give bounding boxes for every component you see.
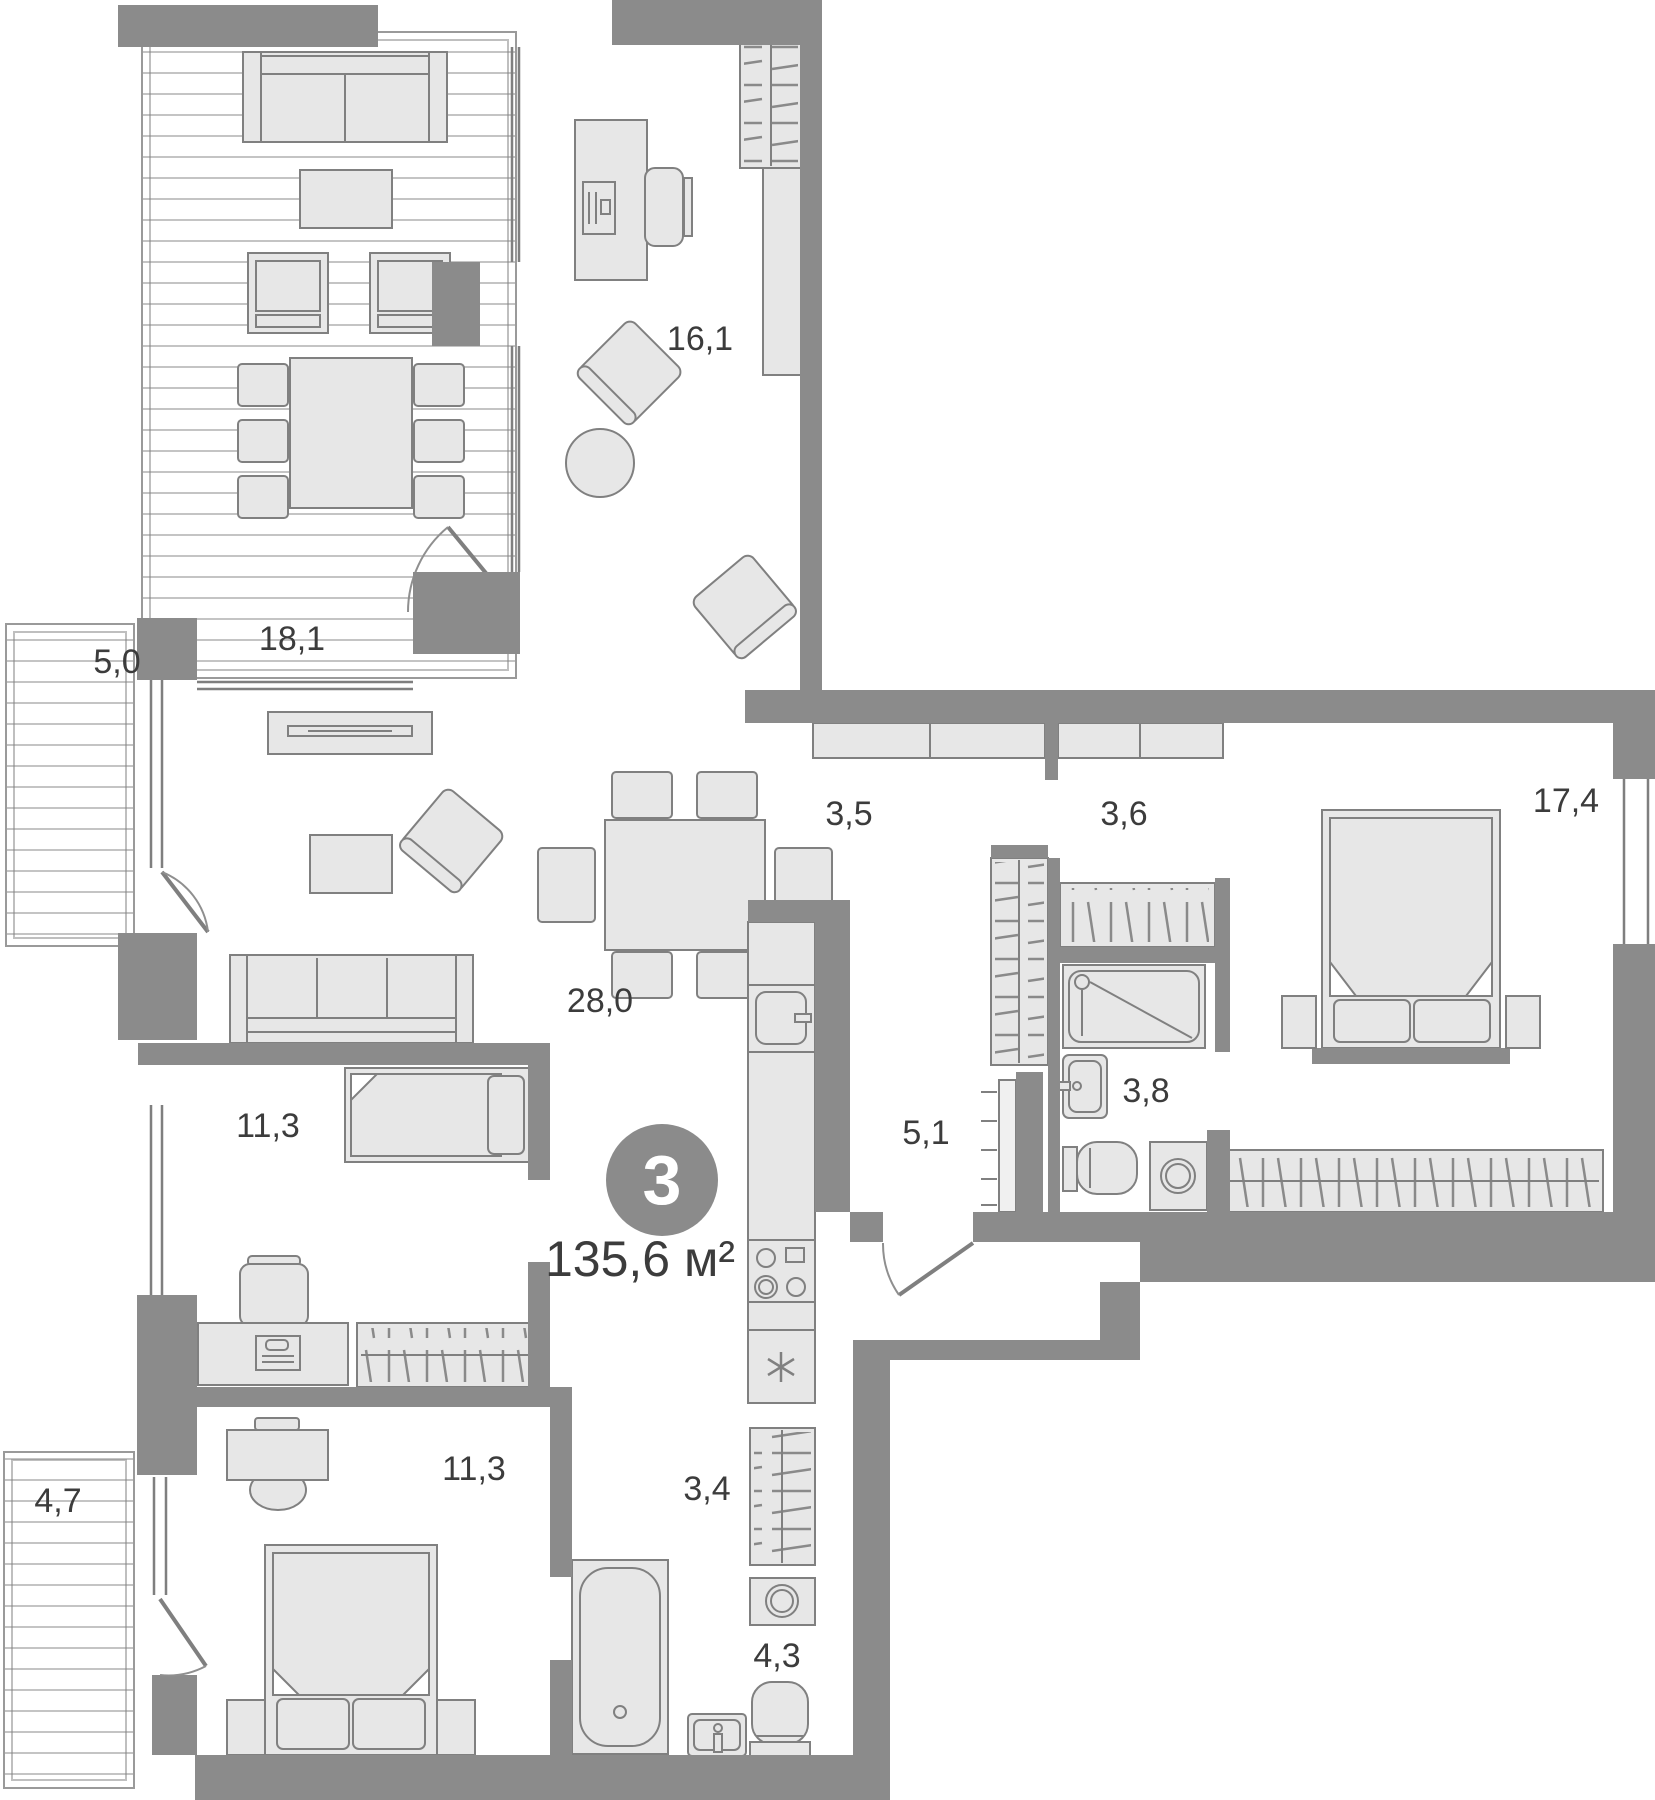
- label-bathroom-top: 3,8: [1122, 1072, 1169, 1110]
- hall-closet-wardrobe: [750, 1428, 815, 1565]
- label-hall-entry: 3,5: [825, 795, 872, 833]
- study-cabinet: [763, 168, 802, 375]
- bottom-desk: [227, 1418, 328, 1510]
- toilet: [1063, 1142, 1137, 1194]
- door-balcony-bottom: [160, 1599, 206, 1675]
- terrace-chair: [248, 253, 328, 333]
- study-wardrobe: [740, 28, 802, 168]
- terrace-dining-table: [238, 358, 464, 518]
- label-balcony-top: 5,0: [93, 643, 140, 681]
- unit-total-area: 135,6 м²: [545, 1231, 735, 1287]
- label-closet-hall: 3,4: [683, 1470, 730, 1508]
- label-hall-closet: 3,6: [1100, 795, 1147, 833]
- unit-number: 3: [643, 1141, 682, 1219]
- living-armchair: [397, 786, 505, 895]
- tv-console: [268, 712, 432, 754]
- living-coffee-table: [310, 835, 392, 893]
- middle-bed: [345, 1068, 530, 1162]
- hall-closets: [813, 723, 1223, 758]
- living-sofa: [230, 955, 473, 1043]
- study-armchair: [690, 552, 798, 661]
- washing-machine-bottom: [750, 1578, 815, 1625]
- sink: [1056, 1055, 1107, 1118]
- door-corridor: [883, 1243, 973, 1295]
- label-terrace: 18,1: [259, 620, 325, 658]
- main-bed: [1282, 810, 1540, 1064]
- shower: [1063, 965, 1205, 1048]
- hall-wardrobe: [991, 858, 1048, 1065]
- label-room-middle: 11,3: [236, 1107, 300, 1145]
- toilet-bottom: [750, 1682, 810, 1756]
- door-balcony-top: [162, 872, 208, 932]
- unit-badge: 3 135,6 м²: [545, 1124, 735, 1287]
- terrace-coffee-table: [300, 170, 392, 228]
- label-bathroom-btm: 4,3: [753, 1637, 800, 1675]
- sink-bottom: [688, 1714, 746, 1756]
- bathroom-top-shelf: [1060, 883, 1215, 947]
- bathtub: [572, 1560, 668, 1754]
- middle-chair: [240, 1256, 308, 1326]
- kitchen-sink-icon: [756, 992, 811, 1044]
- study-round-table: [566, 429, 634, 497]
- floorplan-page: 18,1 16,1 5,0 3,5 3,6 17,4 28,0 11,3 5,1…: [0, 0, 1655, 1800]
- main-bedroom-wardrobe: [1218, 1150, 1603, 1212]
- study-desk: [575, 120, 692, 280]
- middle-desk: [198, 1323, 348, 1385]
- corridor-radiator: [981, 1080, 1016, 1212]
- label-living: 28,0: [567, 982, 633, 1020]
- bottom-bed: [227, 1545, 475, 1755]
- middle-wardrobe: [357, 1323, 547, 1387]
- terrace-sofa: [243, 52, 447, 142]
- floor-plan: 18,1 16,1 5,0 3,5 3,6 17,4 28,0 11,3 5,1…: [0, 0, 1655, 1800]
- label-study: 16,1: [667, 320, 733, 358]
- label-bedroom-btm: 11,3: [442, 1450, 506, 1488]
- kitchen-counter: [748, 922, 815, 1403]
- label-corridor: 5,1: [902, 1114, 949, 1152]
- label-bedroom-main: 17,4: [1533, 782, 1599, 820]
- label-balcony-btm: 4,7: [34, 1482, 81, 1520]
- washing-machine: [1150, 1142, 1207, 1210]
